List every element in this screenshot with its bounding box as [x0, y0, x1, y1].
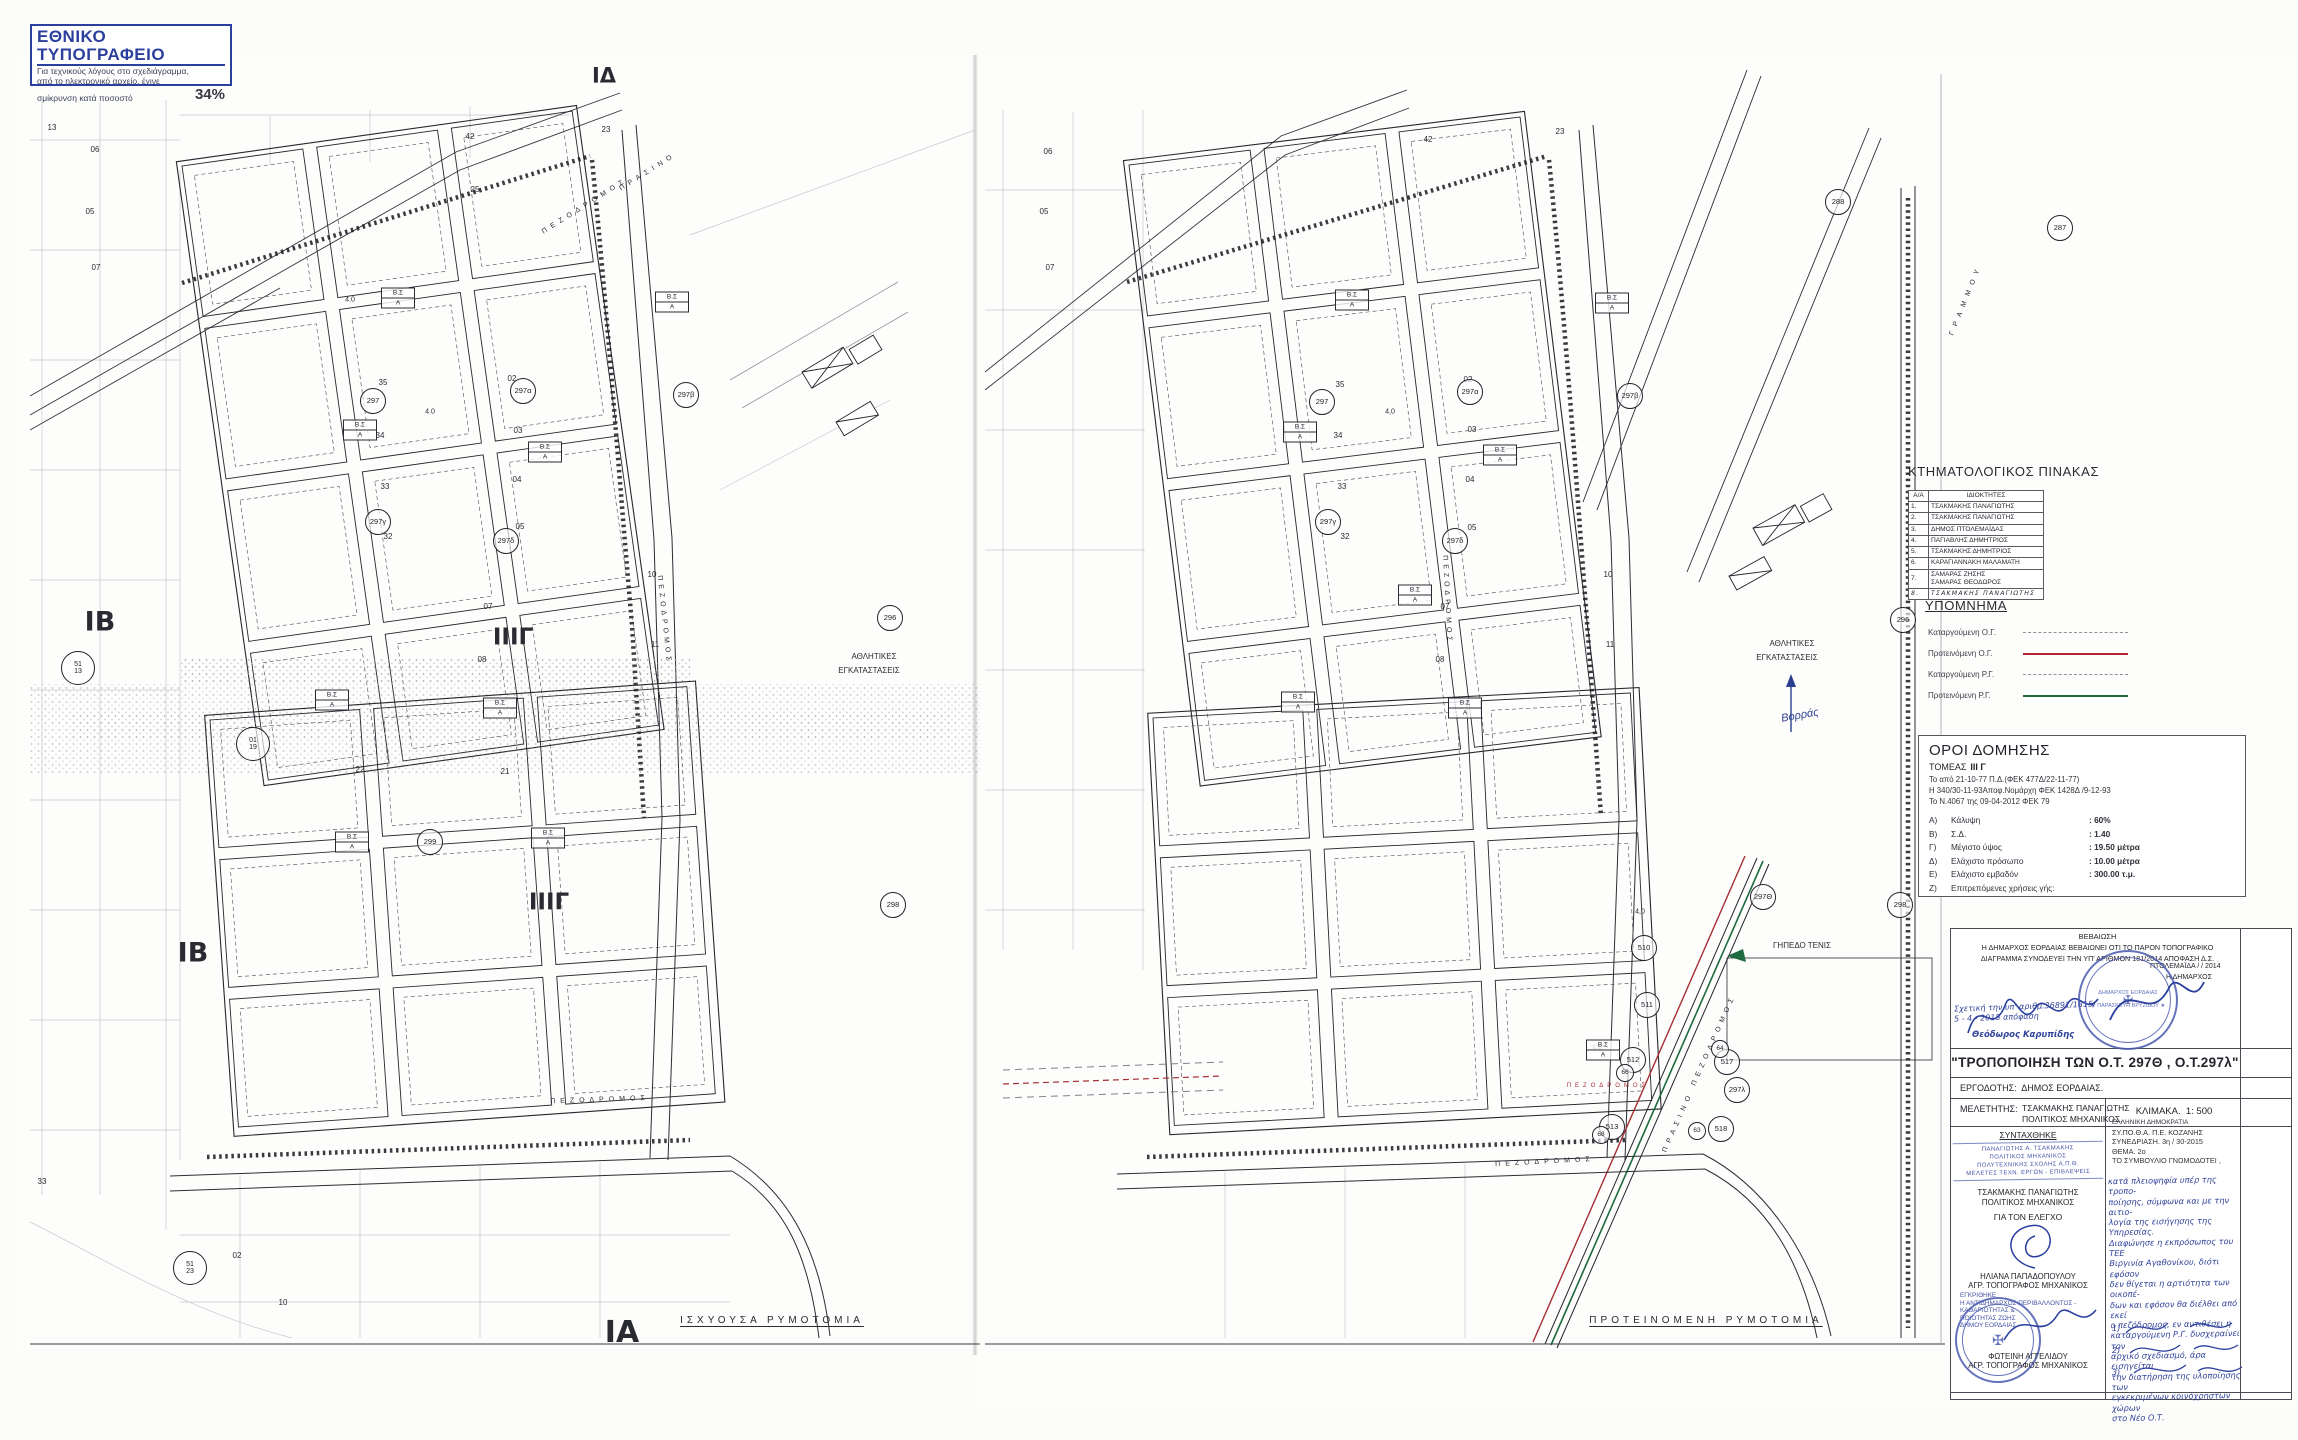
map-label: 05	[86, 208, 95, 216]
bs-top: Β.Σ	[1587, 1041, 1619, 1051]
map-label: 4.0	[345, 297, 355, 304]
map-label: 13	[48, 124, 57, 132]
block-id-circle: 297δ	[493, 528, 519, 554]
building-system-symbol: Β.ΣΑ	[1398, 585, 1432, 606]
block-id-circle: 288	[1825, 189, 1851, 215]
bs-bottom: Α	[1587, 1051, 1619, 1060]
block-id-circle: 296	[877, 605, 903, 631]
legend-item: Προτεινόμενη Ρ.Γ.	[1928, 685, 2148, 706]
map-label: 34	[1334, 432, 1343, 440]
legend: Καταργούμενη Ο.Γ.Προτεινόμενη Ο.Γ.Καταργ…	[1928, 622, 2148, 706]
map-label: 35	[379, 379, 388, 387]
owner-name: ΤΣΑΚΜΑΚΗΣ ΠΑΝΑΓΙΩΤΗΣ	[1929, 513, 2044, 524]
building-system-symbol: Β.ΣΑ	[1586, 1040, 1620, 1061]
map-label: 07	[484, 603, 493, 611]
building-system-symbol: Β.ΣΑ	[1335, 290, 1369, 311]
owner-number: 6.	[1909, 558, 1929, 569]
block-id-circle: 66	[1616, 1064, 1634, 1082]
terms-item-label: Σ.Δ.	[1951, 828, 2089, 842]
bs-bottom: Α	[1596, 304, 1628, 313]
map-label: ΓΡΑΜΜΟΥ	[1948, 263, 1983, 336]
scale-value: 1: 500	[2186, 1106, 2212, 1117]
map-label: ΙΙΙΓ	[529, 892, 569, 915]
building-system-symbol: Β.ΣΑ	[1283, 422, 1317, 443]
owner-number: 2.	[1909, 513, 1929, 524]
legend-item: Καταργούμενη Ο.Γ.	[1928, 622, 2148, 643]
legend-line-sample	[2023, 632, 2128, 633]
bs-top: Β.Σ	[382, 289, 414, 299]
map-label: 06	[1044, 148, 1053, 156]
map-label: 05	[1468, 524, 1477, 532]
bs-top: Β.Σ	[656, 293, 688, 303]
map-label: 32	[384, 533, 393, 541]
bs-top: Β.Σ	[484, 699, 516, 709]
engineer-stamp-line: ΜΕΛΕΤΕΣ ΤΕΧΝ. ΕΡΓΩΝ - ΕΠΙΒΛΕΨΕΙΣ	[1953, 1168, 2103, 1179]
map-label: ΠΕΖΟΔΡΟΜΟΣ	[1441, 555, 1453, 645]
bs-bottom: Α	[1484, 456, 1516, 465]
client-value: ΔΗΜΟΣ ΕΟΡΔΑΙΑΣ.	[2021, 1083, 2103, 1093]
owner-row: 5.ΤΣΑΚΜΑΚΗΣ ΔΗΜΗΤΡΙΟΣ	[1909, 547, 2044, 558]
owner-row: 1.ΤΣΑΚΜΑΚΗΣ ΠΑΝΑΓΙΩΤΗΣ	[1909, 502, 2044, 513]
map-label: ΕΓΚΑΤΑΣΤΑΣΕΙΣ	[838, 667, 899, 675]
block-id-circle: 51 23	[173, 1251, 207, 1285]
block-id-circle: 297λ	[1724, 1077, 1750, 1103]
map-label: 33	[38, 1178, 47, 1186]
bs-top: Β.Σ	[1449, 699, 1481, 709]
map-label: 11	[651, 641, 659, 649]
map-label: 33	[381, 483, 390, 491]
map-label: 4.0	[425, 409, 435, 416]
legend-item-label: Προτεινόμενη Ο.Γ.	[1928, 649, 2023, 658]
council-header: ΕΛΛΗΝΙΚΗ ΔΗΜΟΚΡΑΤΙΑΣΥ.ΠΟ.Θ.Α. Π.Ε. ΚΟΖΑΝ…	[2112, 1118, 2238, 1166]
owner-number: 4.	[1909, 535, 1929, 546]
legend-line-sample	[2023, 674, 2128, 675]
bs-top: Β.Σ	[336, 833, 368, 843]
map-label: ΠΡΑΣΙΝΟ	[1661, 1091, 1694, 1154]
bs-top: Β.Σ	[529, 443, 561, 453]
terms-item: Ζ)Επιτρεπόμενες χρήσεις γής:	[1929, 882, 2235, 896]
map-label: 03	[1468, 426, 1477, 434]
bs-top: Β.Σ	[1484, 446, 1516, 456]
cadastral-table: Α/Α ΙΔΙΟΚΤΗΤΕΣ 1.ΤΣΑΚΜΑΚΗΣ ΠΑΝΑΓΙΩΤΗΣ2.Τ…	[1908, 490, 2044, 600]
council-header-line: ΣΥ.ΠΟ.Θ.Α. Π.Ε. ΚΟΖΑΝΗΣ	[2112, 1128, 2238, 1138]
map-label: 4,0	[1385, 409, 1395, 416]
sector-value: ΙΙΙ Γ	[1970, 762, 1985, 772]
owner-row: 7.ΣΑΜΑΡΑΣ ΖΗΣΗΣ ΣΑΜΑΡΑΣ ΘΕΟΔΩΡΟΣ	[1909, 569, 2044, 588]
sector-label: ΤΟΜΕΑΣ	[1929, 762, 1966, 772]
approved-name: ΦΩΤΕΙΝΗ ΑΓΓΕΛΙΔΟΥ	[1953, 1352, 2103, 1361]
map-label: 23	[1556, 128, 1565, 136]
owner-name: ΚΑΡΑΓΙΑΝΝΑΚΗ ΜΑΛΑΜΑΤΗ	[1929, 558, 2044, 569]
control-signature	[1995, 1220, 2075, 1272]
map-label: 23	[602, 126, 611, 134]
approved-role: ΑΓΡ. ΤΟΠΟΓΡΑΦΟΣ ΜΗΧΑΝΙΚΟΣ	[1953, 1361, 2103, 1370]
bs-bottom: Α	[336, 843, 368, 852]
legend-line-sample	[2023, 653, 2128, 655]
map-label: 07	[1046, 264, 1055, 272]
control-role: ΑΓΡ. ΤΟΠΟΓΡΑΦΟΣ ΜΗΧΑΝΙΚΟΣ	[1953, 1281, 2103, 1290]
scale-label: ΚΛΙΜΑΚΑ.	[2136, 1106, 2181, 1117]
map-label: 42	[466, 133, 475, 141]
map-label: ΙΔ	[592, 66, 616, 87]
terms-item: Γ)Μέγιστο ύψος: 19.50 μέτρα	[1929, 841, 2235, 855]
map-label: ΠΡΟΤΕΙΝΟΜΕΝΗ ΡΥΜΟΤΟΜΙΑ	[1589, 1316, 1822, 1326]
control-name: ΗΛΙΑΝΑ ΠΑΠΑΔΟΠΟΥΛΟΥ	[1953, 1272, 2103, 1281]
certification-body1: Η ΔΗΜΑΡΧΟΣ ΕΟΡΔΑΙΑΣ ΒΕΒΑΙΩΝΕΙ ΟΤΙ ΤΟ ΠΑΡ…	[1955, 943, 2240, 952]
terms-item-key: Δ)	[1929, 855, 1951, 869]
council-signatures	[2120, 1315, 2250, 1390]
terms-item-value: : 300.00 τ.μ.	[2089, 868, 2135, 882]
block-id-circle: 298	[1887, 892, 1913, 918]
owner-name: ΤΣΑΚΜΑΚΗΣ ΠΑΝΑΓΙΩΤΗΣ	[1929, 502, 2044, 513]
drafted-header: ΣΥΝΤΑΧΘΗΚΕ	[1953, 1130, 2103, 1140]
block-id-circle: 51 13	[61, 651, 95, 685]
building-system-symbol: Β.ΣΑ	[335, 832, 369, 853]
building-system-symbol: Β.ΣΑ	[531, 828, 565, 849]
council-handnote-line: λογία της εισήγησης της Υπηρεσίας.	[2109, 1215, 2241, 1238]
bs-top: Β.Σ	[1284, 423, 1316, 433]
building-system-symbol: Β.ΣΑ	[655, 292, 689, 313]
building-terms-items: Α)Κάλυψη: 60%Β)Σ.Δ.: 1.40Γ)Μέγιστο ύψος:…	[1929, 814, 2235, 895]
owner-row: 2.ΤΣΑΚΜΑΚΗΣ ΠΑΝΑΓΙΩΤΗΣ	[1909, 513, 2044, 524]
block-id-circle: 297	[360, 388, 386, 414]
terms-item-value: : 60%	[2089, 814, 2111, 828]
terms-item-key: Β)	[1929, 828, 1951, 842]
building-system-symbol: Β.ΣΑ	[315, 690, 349, 711]
map-label: Βορράς	[1780, 707, 1819, 724]
bs-top: Β.Σ	[1336, 291, 1368, 301]
building-system-symbol: Β.ΣΑ	[1281, 692, 1315, 713]
terms-item-key: Ζ)	[1929, 882, 1951, 896]
bs-top: Β.Σ	[1282, 693, 1314, 703]
owner-number: 5.	[1909, 547, 1929, 558]
bs-bottom: Α	[484, 709, 516, 718]
block-id-circle: 298	[880, 892, 906, 918]
map-label: 10	[279, 1299, 288, 1307]
block-id-circle: 297α	[1457, 379, 1483, 405]
owner-name: ΣΑΜΑΡΑΣ ΖΗΣΗΣ ΣΑΜΑΡΑΣ ΘΕΟΔΩΡΟΣ	[1929, 569, 2044, 588]
map-label: ΙΒ	[178, 940, 209, 967]
block-id-circle: 518	[1708, 1116, 1734, 1142]
block-id-circle: 297	[1309, 389, 1335, 415]
terms-item-value: : 19.50 μέτρα	[2089, 841, 2140, 855]
block-id-circle: 287	[2047, 215, 2073, 241]
block-id-circle: 297γ	[365, 509, 391, 535]
legend-title: ΥΠΟΜΝΗΜΑ	[1925, 598, 2007, 613]
block-id-circle: 510	[1631, 935, 1657, 961]
terms-ref: Το Ν.4067 της 09-04-2012 ΦΕΚ 79	[1929, 796, 2235, 807]
map-label: ΑΘΛΗΤΙΚΕΣ	[851, 653, 896, 661]
block-id-circle: 68	[1592, 1126, 1610, 1144]
map-label: ΙΙΙΓ	[493, 627, 533, 650]
council-header-line: ΣΥΝΕΔΡΙΑΣΗ. 3η / 30-2015	[2112, 1137, 2238, 1147]
approval-stamp-line: ΕΓΚΡΙΘΗΚΕ	[1960, 1292, 2105, 1300]
map-label: 03	[514, 427, 523, 435]
bs-bottom: Α	[532, 839, 564, 848]
council-handnote-line: δεν θίγεται η αρτιότητα των οικοπέ-	[2110, 1277, 2242, 1300]
council-handnote-line: Διαφώνησε η εκπρόσωπος του ΤΕΕ	[2109, 1236, 2241, 1259]
bs-bottom: Α	[529, 453, 561, 462]
legend-item: Καταργούμενη Ρ.Γ.	[1928, 664, 2148, 685]
map-label: 07	[1441, 603, 1450, 611]
map-label: 42	[1424, 136, 1433, 144]
map-label: 10	[648, 571, 657, 579]
building-system-symbol: Β.ΣΑ	[1448, 698, 1482, 719]
owner-row: 4.ΠΑΓΙΑΒΛΗΣ ΔΗΜΗΤΡΙΟΣ	[1909, 535, 2044, 546]
terms-item-label: Ελάχιστο εμβαδόν	[1951, 868, 2089, 882]
bs-bottom: Α	[1449, 709, 1481, 718]
map-label: 02	[233, 1252, 242, 1260]
map-label: ΙΑ	[605, 1318, 639, 1348]
block-id-circle: 297Θ	[1750, 884, 1776, 910]
map-label: 32	[1341, 533, 1350, 541]
designer-label: ΜΕΛΕΤΗΤΗΣ:	[1960, 1104, 2018, 1114]
terms-item-label: Μέγιστο ύψος	[1951, 841, 2089, 855]
scanned-planning-drawing: { "print_stamp": { "title": "ΕΘΝΙΚΟ ΤΥΠΟ…	[0, 0, 2298, 1440]
map-label: ΠΕΖΟΔΡΟΜΟΣ	[1567, 1083, 1650, 1089]
building-system-symbol: Β.ΣΑ	[381, 288, 415, 309]
map-label: 21	[501, 768, 510, 776]
map-label: ΠΕΖΟΔΡΟΜΟΣ	[656, 575, 672, 665]
certification-title: ΒΕΒΑΙΩΣΗ	[1955, 932, 2240, 941]
terms-ref: Η 340/30-11-93Αποφ.Νομάρχη ΦΕΚ 1428Δ /9-…	[1929, 785, 2235, 796]
map-label: 05	[1040, 208, 1049, 216]
project-title: "ΤΡΟΠΟΠΟΙΗΣΗ ΤΩΝ Ο.Τ. 297Θ , Ο.Τ.297λ"	[1950, 1055, 2240, 1070]
building-terms-refs: Το από 21-10-77 Π.Δ.(ΦΕΚ 477Δ/22-11-77)Η…	[1929, 774, 2235, 807]
building-system-symbol: Β.ΣΑ	[483, 698, 517, 719]
block-id-circle: 296	[1890, 607, 1916, 633]
block-id-circle: 63	[1688, 1122, 1706, 1140]
map-label: 25	[471, 186, 480, 194]
terms-item-label: Επιτρεπόμενες χρήσεις γής:	[1951, 882, 2089, 896]
col-header-owners: ΙΔΙΟΚΤΗΤΕΣ	[1929, 491, 2044, 502]
owner-name: ΤΣΑΚΜΑΚΗΣ ΔΗΜΗΤΡΙΟΣ	[1929, 547, 2044, 558]
owner-row: 3.ΔΗΜΟΣ ΠΤΟΛΕΜΑΪΔΑΣ	[1909, 524, 2044, 535]
legend-item-label: Προτεινόμενη Ρ.Γ.	[1928, 691, 2023, 700]
owner-number: 1.	[1909, 502, 1929, 513]
terms-item-label: Ελάχιστο πρόσωπο	[1951, 855, 2089, 869]
council-handnote-line: ποίησης, σύμφωνα και με την αιτιο-	[2108, 1194, 2240, 1217]
map-label: 22	[356, 766, 365, 774]
terms-item-key: Γ)	[1929, 841, 1951, 855]
owner-name: ΠΑΓΙΑΒΛΗΣ ΔΗΜΗΤΡΙΟΣ	[1929, 535, 2044, 546]
terms-item: Δ)Ελάχιστο πρόσωπο: 10.00 μέτρα	[1929, 855, 2235, 869]
building-system-symbol: Β.ΣΑ	[343, 420, 377, 441]
approval-signature	[2000, 1300, 2100, 1348]
owner-name: ΔΗΜΟΣ ΠΤΟΛΕΜΑΪΔΑΣ	[1929, 524, 2044, 535]
client-row: ΕΡΓΟΔΟΤΗΣ: ΔΗΜΟΣ ΕΟΡΔΑΙΑΣ.	[1960, 1083, 2103, 1093]
designer-role: ΠΟΛΙΤΙΚΟΣ ΜΗΧΑΝΙΚΟΣ.	[2022, 1114, 2123, 1124]
map-label: ΠΕΖΟΔΡΟΜΟΣ	[1495, 1156, 1595, 1168]
council-header-line: ΤΟ ΣΥΜΒΟΥΛΙΟ ΓΝΩΜΟΔΟΤΕΙ ,	[2112, 1156, 2238, 1166]
map-label: ΙΒ	[85, 609, 116, 636]
block-id-circle: 299	[417, 829, 443, 855]
block-id-circle: 297β	[673, 382, 699, 408]
terms-item-label: Κάλυψη	[1951, 814, 2089, 828]
legend-item-label: Καταργούμενη Ο.Γ.	[1928, 628, 2023, 637]
block-id-circle: 64	[1711, 1040, 1729, 1058]
terms-item: Ε)Ελάχιστο εμβαδόν: 300.00 τ.μ.	[1929, 868, 2235, 882]
bs-bottom: Α	[656, 303, 688, 312]
terms-ref: Το από 21-10-77 Π.Δ.(ΦΕΚ 477Δ/22-11-77)	[1929, 774, 2235, 785]
map-label: ΠΕΖΟΔΡΟΜΟΣ	[541, 177, 629, 236]
map-label: 08	[478, 656, 487, 664]
council-handnote-line: Βιργινία Αγαθονίκου, διότι εφόσον	[2109, 1256, 2241, 1279]
map-label: ΕΓΚΑΤΑΣΤΑΣΕΙΣ	[1756, 654, 1817, 662]
block-id-circle: 297α	[510, 378, 536, 404]
map-label: ΠΕΖΟΔΡΟΜΟΣ	[550, 1095, 650, 1105]
map-label: 35	[1336, 381, 1345, 389]
council-header-line: ΕΛΛΗΝΙΚΗ ΔΗΜΟΚΡΑΤΙΑ	[2112, 1118, 2238, 1128]
bs-bottom: Α	[316, 701, 348, 710]
owner-number: 3.	[1909, 524, 1929, 535]
map-label: ΑΘΛΗΤΙΚΕΣ	[1769, 640, 1814, 648]
block-id-circle: 297β	[1617, 383, 1643, 409]
terms-item: Β)Σ.Δ.: 1.40	[1929, 828, 2235, 842]
terms-item-value: : 10.00 μέτρα	[2089, 855, 2140, 869]
owner-number: 7.	[1909, 569, 1929, 588]
map-label: ΠΡΑΣΙΝΟ	[618, 152, 677, 193]
bs-top: Β.Σ	[316, 691, 348, 701]
building-system-symbol: Β.ΣΑ	[1595, 293, 1629, 314]
building-system-symbol: Β.ΣΑ	[1483, 445, 1517, 466]
terms-item: Α)Κάλυψη: 60%	[1929, 814, 2235, 828]
mayor-stamp-signature	[2100, 970, 2210, 1030]
map-label: 04	[1466, 476, 1475, 484]
bs-top: Β.Σ	[344, 421, 376, 431]
map-label: ΓΗΠΕΔΟ ΤΕΝΙΣ	[1773, 942, 1831, 950]
bs-bottom: Α	[344, 431, 376, 440]
map-label: 10	[1604, 571, 1613, 579]
block-id-circle: 297γ	[1315, 509, 1341, 535]
map-label: 33	[1338, 483, 1347, 491]
drafted-name: ΤΣΑΚΜΑΚΗΣ ΠΑΝΑΓΙΩΤΗΣ	[1953, 1188, 2103, 1197]
terms-item-value: : 1.40	[2089, 828, 2110, 842]
map-label: 4,0	[1635, 909, 1645, 916]
client-label: ΕΡΓΟΔΟΤΗΣ:	[1960, 1083, 2017, 1093]
bs-top: Β.Σ	[1596, 294, 1628, 304]
bs-top: Β.Σ	[532, 829, 564, 839]
owner-row: 6.ΚΑΡΑΓΙΑΝΝΑΚΗ ΜΑΛΑΜΑΤΗ	[1909, 558, 2044, 569]
scale-cell: ΚΛΙΜΑΚΑ. 1: 500	[2110, 1106, 2238, 1117]
legend-item: Προτεινόμενη Ο.Γ.	[1928, 643, 2148, 664]
drafted-role: ΠΟΛΙΤΙΚΟΣ ΜΗΧΑΝΙΚΟΣ	[1953, 1198, 2103, 1207]
engineer-stamp: ΠΑΝΑΓΙΩΤΗΣ Α. ΤΣΑΚΜΑΚΗΣΠΟΛΙΤΙΚΟΣ ΜΗΧΑΝΙΚ…	[1953, 1141, 2104, 1182]
bs-bottom: Α	[1284, 433, 1316, 442]
bs-bottom: Α	[1399, 596, 1431, 605]
map-label: 06	[91, 146, 100, 154]
map-label: 07	[92, 264, 101, 272]
col-header-aa: Α/Α	[1909, 491, 1929, 502]
bs-bottom: Α	[1336, 301, 1368, 310]
legend-line-sample	[2023, 695, 2128, 697]
map-label: 05	[516, 523, 525, 531]
legend-item-label: Καταργούμενη Ρ.Γ.	[1928, 670, 2023, 679]
block-id-circle: 511	[1634, 992, 1660, 1018]
council-header-line: ΘΕΜΑ. 2ο	[2112, 1147, 2238, 1157]
bs-bottom: Α	[1282, 703, 1314, 712]
map-label: 11	[1606, 641, 1614, 649]
cadastral-table-title: ΚΤΗΜΑΤΟΛΟΓΙΚΟΣ ΠΙΝΑΚΑΣ	[1908, 464, 2099, 479]
building-terms-sector: ΤΟΜΕΑΣΙΙΙ Γ	[1929, 762, 2235, 772]
terms-item-key: Α)	[1929, 814, 1951, 828]
council-handnote-line: εγκεκριμένων κοινόχρηστων χώρων	[2112, 1390, 2244, 1413]
map-label: ΙΣΧΥΟΥΣΑ ΡΥΜΟΤΟΜΙΑ	[680, 1316, 864, 1326]
terms-item-key: Ε)	[1929, 868, 1951, 882]
building-terms-title: ΟΡΟΙ ΔΟΜΗΣΗΣ	[1929, 742, 2235, 759]
map-label: 04	[513, 476, 522, 484]
map-label: 08	[1436, 656, 1445, 664]
building-system-symbol: Β.ΣΑ	[528, 442, 562, 463]
building-terms-box: ΟΡΟΙ ΔΟΜΗΣΗΣ ΤΟΜΕΑΣΙΙΙ Γ Το από 21-10-77…	[1918, 735, 2246, 897]
bs-bottom: Α	[382, 299, 414, 308]
bs-top: Β.Σ	[1399, 586, 1431, 596]
council-handnote-line: κατά πλειοψηφία υπέρ της τροπο-	[2108, 1174, 2240, 1197]
block-id-circle: 01 19	[236, 727, 270, 761]
block-id-circle: 297δ	[1442, 528, 1468, 554]
